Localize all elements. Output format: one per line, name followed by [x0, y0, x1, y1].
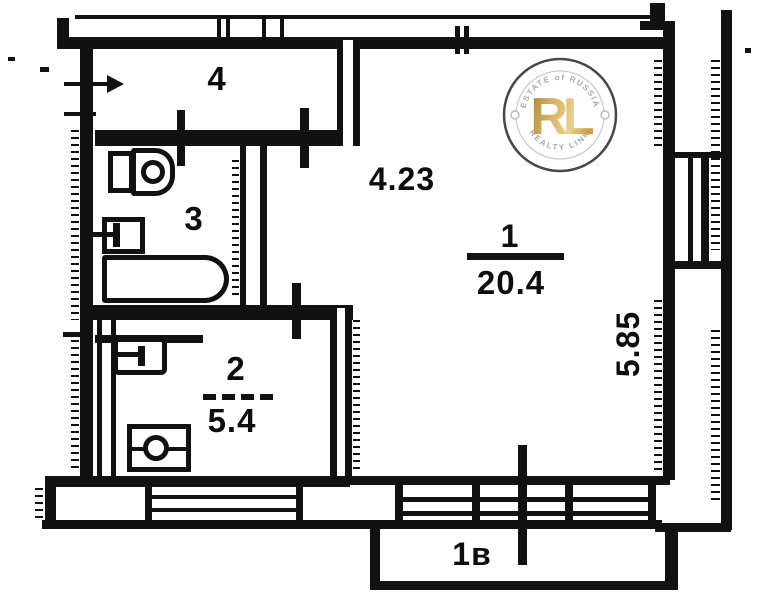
balcony-right-edge: [665, 527, 678, 590]
kitchen-sink-faucet-bar: [138, 346, 145, 366]
kitchen-window-pane-line: [152, 508, 296, 512]
kitchen-window-jamb: [296, 487, 303, 527]
bathroom-number-label: 3: [175, 202, 213, 235]
floor-plan: 4 3 2 5.4 1 20.4 4.23 5.85 1в ESTATE of …: [0, 0, 773, 600]
wall-living-right-hatching: [654, 60, 662, 150]
wall-hallway-bottom: [95, 130, 353, 146]
door-marker-kitchen: [292, 283, 301, 339]
wall-living-bottom: [345, 476, 670, 485]
seal-right-dot-icon: [601, 111, 609, 119]
right-niche-bottom: [663, 261, 721, 269]
door-marker-bathroom: [177, 110, 185, 166]
dimension-width-label: 4.23: [352, 163, 452, 195]
living-window-jamb: [395, 483, 403, 527]
balcony-left-edge: [370, 527, 380, 589]
living-area-label: 20.4: [455, 266, 567, 299]
wall-living-right-hatching: [654, 300, 662, 470]
bathtub-icon: [102, 255, 229, 303]
wall-left-outer: [80, 37, 93, 478]
kitchen-window-jamb: [145, 487, 152, 527]
scan-noise-dot: [745, 48, 751, 53]
living-window-jamb: [565, 483, 573, 527]
kitchen-area-label: 5.4: [196, 404, 268, 437]
wall-kitchen-right-hatching: [353, 320, 360, 470]
wall-bathroom-bottom: [83, 305, 353, 320]
right-niche-line: [701, 152, 709, 267]
wall-left-hatching: [71, 340, 79, 470]
hallway-number-label: 4: [198, 62, 236, 95]
entrance-door-mark: [64, 112, 96, 116]
seal-monogram: RL: [530, 88, 594, 146]
wall-right-outer: [721, 10, 732, 530]
wall-bathroom-right: [240, 146, 267, 316]
bathroom-sink-faucet-stem: [86, 232, 116, 237]
wall-top-tick: [262, 19, 266, 39]
balcony-door-marker: [518, 445, 527, 565]
wall-top-right-stub: [650, 3, 665, 23]
wall-kitchen-bottom: [50, 476, 350, 487]
kitchen-area-divider: [203, 394, 277, 400]
kitchen-window-pane-line: [152, 495, 296, 499]
wall-hallway-right: [337, 40, 360, 146]
wall-left-tick: [63, 332, 81, 337]
living-number-label: 1: [494, 220, 526, 252]
scan-noise-dot: [40, 67, 49, 72]
scan-noise-dot: [8, 57, 15, 61]
wall-top-thin: [75, 15, 662, 19]
entrance-arrow-icon: [107, 75, 124, 93]
right-niche-top: [675, 152, 723, 158]
entrance-arrow-line: [64, 82, 110, 86]
wall-kitchen-right: [330, 308, 352, 480]
seal-left-dot-icon: [511, 111, 519, 119]
wall-left-hatching: [71, 130, 79, 320]
wall-top-main: [57, 37, 672, 49]
balcony-label: 1в: [440, 538, 504, 570]
wall-bathroom-hatching: [232, 160, 239, 300]
kitchen-number-label: 2: [218, 352, 254, 385]
wall-top-tick: [226, 19, 230, 39]
living-area-divider: [467, 253, 564, 260]
wall-left-lower-hatching: [35, 488, 43, 522]
right-niche-line: [688, 152, 693, 267]
wall-right-bottom-connector: [678, 523, 731, 532]
toilet-bowl-circle-icon: [141, 160, 165, 184]
wall-living-right: [663, 21, 675, 480]
living-window-jamb: [648, 483, 656, 527]
wall-right-outer-hatching: [711, 330, 720, 505]
bathroom-sink-faucet-bar: [113, 223, 120, 247]
balcony-bottom-edge: [370, 581, 678, 590]
wall-top-tick: [280, 19, 284, 39]
dimension-depth-label: 5.85: [612, 299, 644, 389]
realty-watermark-seal: ESTATE of RUSSIA REALTY LINK RL: [498, 54, 622, 176]
wall-top-tick: [217, 19, 221, 39]
stove-burner-icon: [143, 435, 169, 461]
living-window-jamb: [472, 483, 480, 527]
door-marker-corridor: [300, 108, 309, 168]
